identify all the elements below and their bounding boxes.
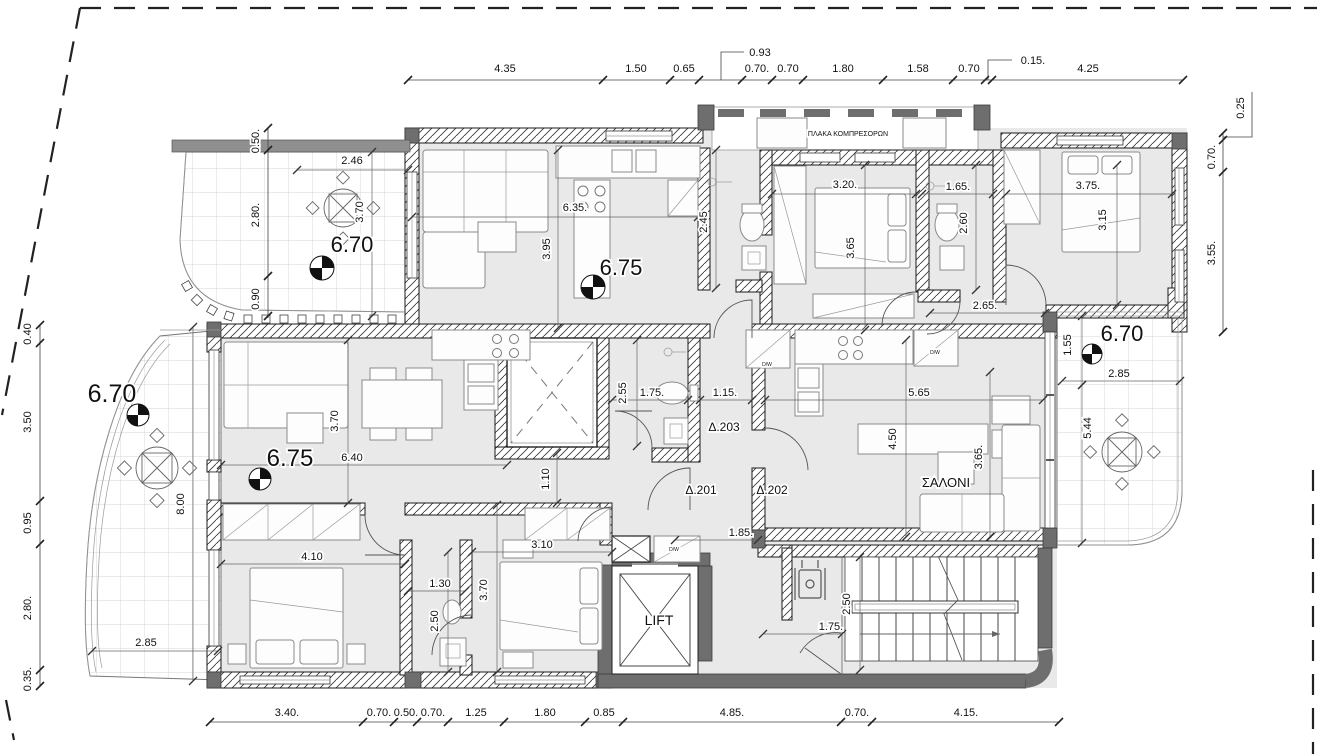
dimension-label: 3.65 <box>845 237 857 258</box>
dimension-label: 3.65. <box>973 445 985 469</box>
dimension-label: 1.80 <box>832 63 853 75</box>
room-label: D/W <box>930 350 940 356</box>
dimension-label: 1.75. <box>640 387 664 399</box>
dimension-label: 4.25 <box>1077 63 1098 75</box>
dimension-label: 0.70. <box>1206 145 1218 169</box>
dimension-label: 0.95 <box>22 512 34 533</box>
balcony-right <box>1057 312 1182 545</box>
dimension-label: 2.65. <box>973 300 997 312</box>
dimension-label: 6.40 <box>341 452 362 464</box>
dimension-label: 0.25 <box>1235 97 1247 118</box>
dimension-label: 2.55 <box>617 382 629 403</box>
dimension-label: 1.80 <box>534 707 555 719</box>
dimension-label: 3.40. <box>275 707 299 719</box>
dimension-label: 2.85 <box>1108 368 1129 380</box>
dimension-label: 0.93 <box>749 47 770 59</box>
dimension-label: 4.15. <box>954 707 978 719</box>
level-marker <box>310 256 334 280</box>
room-label: Δ.202 <box>756 483 788 497</box>
room-label: ΣΑΛΟΝΙ <box>922 475 970 490</box>
room-label: Δ.201 <box>685 483 717 497</box>
dimension-label: 0.50. <box>250 129 262 153</box>
dimension-label: 0.40 <box>22 323 34 344</box>
dimension-label: 0.90 <box>250 288 262 309</box>
balcony-top-left <box>180 152 408 312</box>
dimension-label: 3.70 <box>329 410 341 431</box>
dimension-label: 1.75. <box>819 621 843 633</box>
dimension-label: 1.85. <box>729 527 753 539</box>
dimension-label: 0.70. <box>421 707 445 719</box>
dimension-label: 0.15. <box>1021 55 1045 67</box>
dimension-label: 0.85 <box>593 707 614 719</box>
room-label: D/W <box>669 547 679 553</box>
dimension-label: 4.50 <box>887 428 899 449</box>
dimension-label: 1.25 <box>465 707 486 719</box>
dimension-label: 2.80. <box>22 596 34 620</box>
level-value: 6.75 <box>267 445 314 472</box>
dimension-label: 4.10 <box>301 551 322 563</box>
dimension-label: 2.50 <box>429 610 441 631</box>
level-marker <box>581 275 605 299</box>
level-value: 6.70 <box>331 232 374 257</box>
dimension-label: 0.70. <box>367 707 391 719</box>
dimension-label: 3.55. <box>1206 241 1218 265</box>
dimension-label: 1.30 <box>429 578 450 590</box>
dimension-label: 2.50 <box>841 593 853 614</box>
level-marker <box>249 468 271 490</box>
dimension-label: 2.45 <box>698 211 710 232</box>
dimension-label: 3.95 <box>541 238 553 259</box>
floor-plan-svg: 4.351.500.650.930.70.0.701.801.580.700.1… <box>0 0 1317 754</box>
dimension-label: 3.70 <box>478 579 490 600</box>
dimension-label: 0.35. <box>22 667 34 691</box>
dimension-label: 3.50 <box>22 411 34 432</box>
dimension-label: 3.15 <box>1097 209 1109 230</box>
dimension-label: 4.35 <box>494 63 515 75</box>
level-value: 6.75 <box>600 255 643 280</box>
room-label: Δ.203 <box>708 420 740 434</box>
dimension-label: 3.10 <box>531 539 552 551</box>
dimension-label: 0.70. <box>845 707 869 719</box>
dimension-label: 3.70 <box>354 201 366 222</box>
room-label: D/W <box>762 362 772 368</box>
dimension-label: 0.65 <box>673 63 694 75</box>
dimension-label: 2.80. <box>250 203 262 227</box>
dimension-label: 5.44 <box>1082 417 1094 438</box>
dimension-label: 0.70 <box>958 63 979 75</box>
level-value: 6.70 <box>88 380 137 408</box>
dimension-label: 2.60 <box>958 212 970 233</box>
level-value: 6.70 <box>1101 321 1144 346</box>
dimension-label: 2.85 <box>135 637 156 649</box>
dimension-label: 2.46 <box>341 155 362 167</box>
dimension-label: 4.85. <box>720 707 744 719</box>
floor-plan-page: 4.351.500.650.930.70.0.701.801.580.700.1… <box>0 0 1317 754</box>
dimension-label: 5.65 <box>908 387 929 399</box>
room-label: ΠΛΑΚΑ ΚΟΜΠΡΕΣΟΡΩΝ <box>808 131 888 138</box>
dimension-label: 3.20. <box>833 179 857 191</box>
dimension-label: 1.55 <box>1062 334 1074 355</box>
level-marker <box>1082 344 1102 364</box>
dimension-label: 0.70. <box>745 63 769 75</box>
dimension-label: 0.70 <box>777 63 798 75</box>
dimension-label: 0.50. <box>394 707 418 719</box>
dimension-label: 1.15. <box>713 387 737 399</box>
dimension-label: 6.35. <box>563 202 587 214</box>
room-label: LIFT <box>645 612 674 628</box>
dimension-label: 3.75. <box>1076 180 1100 192</box>
dimension-label: 1.50 <box>625 63 646 75</box>
dimension-label: 1.65. <box>946 181 970 193</box>
level-marker <box>127 404 149 426</box>
dimension-label: 8.00 <box>175 493 187 514</box>
dimension-label: 1.58 <box>907 63 928 75</box>
dimension-label: 1.10 <box>540 468 552 489</box>
